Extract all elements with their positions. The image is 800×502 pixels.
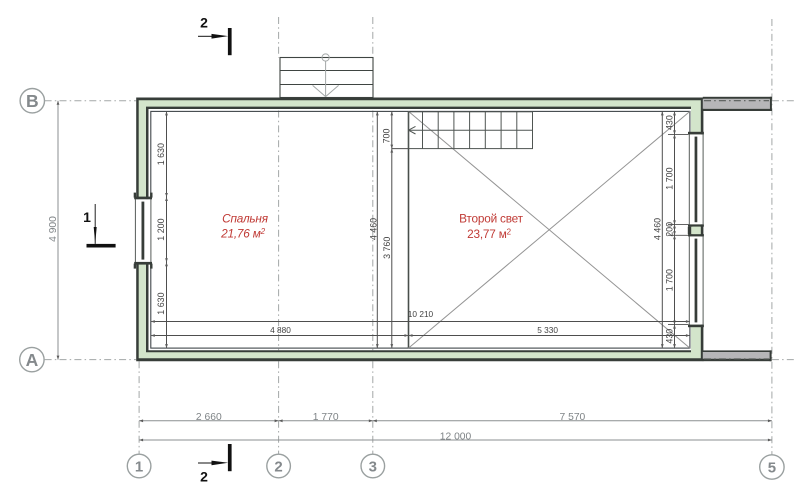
svg-text:5: 5 bbox=[768, 459, 776, 476]
svg-text:1 700: 1 700 bbox=[665, 167, 675, 189]
svg-text:В: В bbox=[26, 91, 39, 111]
svg-text:1: 1 bbox=[135, 458, 143, 475]
svg-text:1: 1 bbox=[83, 209, 91, 225]
svg-text:23,77 м2: 23,77 м2 bbox=[467, 227, 512, 241]
svg-text:5 330: 5 330 bbox=[537, 325, 558, 335]
svg-text:1 630: 1 630 bbox=[156, 292, 166, 314]
svg-text:4 460: 4 460 bbox=[369, 218, 379, 240]
svg-text:4 460: 4 460 bbox=[652, 218, 662, 240]
svg-text:700: 700 bbox=[382, 129, 392, 144]
svg-text:А: А bbox=[26, 350, 39, 370]
svg-text:4 900: 4 900 bbox=[48, 216, 59, 242]
svg-text:430: 430 bbox=[665, 329, 675, 344]
svg-text:3 760: 3 760 bbox=[382, 237, 392, 259]
svg-text:21,76 м2: 21,76 м2 bbox=[220, 227, 266, 241]
svg-text:200: 200 bbox=[665, 222, 675, 237]
svg-text:2: 2 bbox=[200, 15, 208, 31]
svg-text:2: 2 bbox=[274, 458, 282, 475]
svg-text:1 770: 1 770 bbox=[313, 412, 339, 423]
svg-text:1 630: 1 630 bbox=[156, 143, 166, 165]
svg-text:Спальня: Спальня bbox=[222, 212, 269, 226]
svg-text:1 200: 1 200 bbox=[156, 218, 166, 240]
svg-text:2: 2 bbox=[200, 468, 208, 484]
svg-text:Второй свет: Второй свет bbox=[459, 212, 523, 226]
svg-text:7 570: 7 570 bbox=[560, 412, 586, 423]
svg-text:430: 430 bbox=[665, 115, 675, 130]
svg-text:3: 3 bbox=[369, 458, 377, 475]
svg-text:12 000: 12 000 bbox=[440, 431, 472, 442]
svg-text:1 700: 1 700 bbox=[665, 269, 675, 291]
svg-text:4 880: 4 880 bbox=[270, 325, 291, 335]
svg-text:10 210: 10 210 bbox=[408, 309, 434, 319]
svg-text:2 660: 2 660 bbox=[196, 412, 222, 423]
